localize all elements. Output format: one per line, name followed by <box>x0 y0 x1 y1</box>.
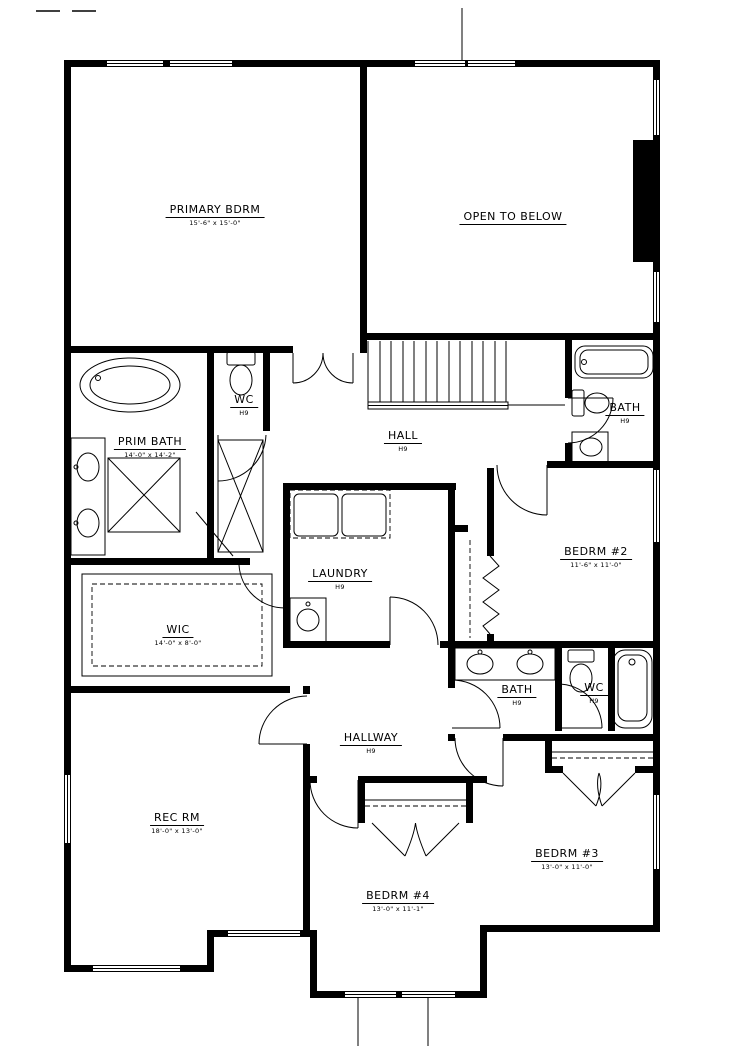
door-swing <box>452 680 500 728</box>
sink <box>517 654 543 674</box>
laundry-sink <box>297 609 319 631</box>
room-label-hallway: HALLWAY H9 <box>340 726 402 755</box>
counter <box>290 490 390 538</box>
toilet-tank <box>568 650 594 662</box>
room-label-primary-bdrm: PRIMARY BDRM 15'-6" x 15'-0" <box>166 198 265 227</box>
room-label-rec-rm: REC RM 18'-0" x 13'-0" <box>150 806 204 835</box>
room-label-prim-bath: PRIM BATH 14'-0" x 14'-2" <box>114 430 186 459</box>
door-swing <box>310 780 358 828</box>
mud-set-shower <box>108 458 180 532</box>
accordion-closet-doors <box>483 556 499 634</box>
room-label-open-to-below: OPEN TO BELOW <box>459 205 566 226</box>
room-label-wc-primary: WC H9 <box>230 388 258 417</box>
toilet-tank <box>572 390 584 416</box>
bifold-doors <box>563 773 635 806</box>
room-label-bedrm-3: BEDRM #3 13'-0" x 11'-0" <box>531 842 603 871</box>
sink <box>77 509 99 537</box>
room-label-bath-middle: BATH H9 <box>497 678 536 707</box>
room-label-hall: HALL H9 <box>384 424 422 453</box>
room-label-bedrm-4: BEDRM #4 13'-0" x 11'-1" <box>362 884 434 913</box>
middle-bath-fixtures <box>452 648 652 728</box>
tub-faucet <box>96 376 101 381</box>
room-label-laundry: LAUNDRY H9 <box>308 562 372 591</box>
room-label-bath-upper: BATH H9 <box>605 396 644 425</box>
bedrm4-closet <box>365 800 466 856</box>
room-label-wic: WIC 14'-0" x 8'-0" <box>154 618 201 647</box>
shower-enclosure <box>196 440 263 556</box>
floor-plan-page: PRIMARY BDRM 15'-6" x 15'-0" OPEN TO BEL… <box>0 0 747 1050</box>
door-swing <box>259 696 307 744</box>
double-vanity <box>455 648 555 680</box>
toilet-tank <box>227 352 255 365</box>
room-label-bedrm-2: BEDRM #2 11'-6" x 11'-0" <box>560 540 632 569</box>
room-label-wc-middle: WC H9 <box>580 676 608 705</box>
bedrm2-door-closet <box>470 465 547 638</box>
sink <box>77 453 99 481</box>
washer <box>294 494 338 536</box>
door-swing <box>390 597 438 645</box>
primary-bedroom-double-doors <box>293 353 353 383</box>
vanity <box>572 432 608 462</box>
sink <box>467 654 493 674</box>
bedrm3-closet <box>552 752 653 806</box>
staircase <box>368 341 565 409</box>
laundry-sink-cabinet <box>290 598 326 644</box>
bifold-doors <box>372 823 459 856</box>
dryer <box>342 494 386 536</box>
fireplace-chase <box>633 140 660 262</box>
door-swing <box>497 465 547 515</box>
